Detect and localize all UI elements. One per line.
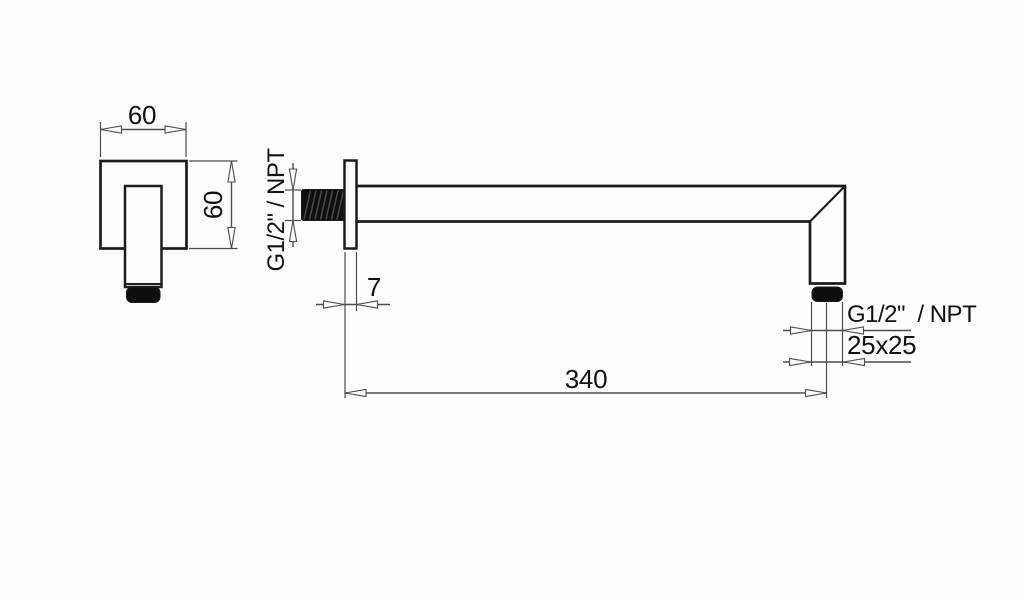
dim-arm-length: 340	[345, 303, 827, 398]
dim-wall-thread: G1/2" / NPT	[263, 148, 301, 272]
outlet-cap-front	[127, 287, 161, 303]
arrowhead-right	[790, 358, 811, 365]
arrowhead-right	[806, 389, 827, 396]
arrowhead-down	[289, 169, 296, 190]
wall-thread-nipple	[302, 190, 345, 221]
arrowhead-down	[228, 228, 235, 249]
arrowhead-up	[289, 221, 296, 242]
wall-thread-label: G1/2" / NPT	[263, 148, 290, 272]
shower-arm-technical-drawing: 60 60	[0, 0, 1024, 600]
front-view: 60 60	[101, 100, 238, 303]
plate-thickness-value: 7	[367, 272, 381, 302]
side-view: G1/2" / NPT 7 340 G1/2" / NPT	[263, 148, 977, 398]
outlet-fitting	[812, 287, 843, 302]
arrowhead-right	[324, 301, 345, 308]
dim-flange-width: 60	[101, 100, 187, 157]
arm-outline	[357, 186, 846, 284]
arrowhead-right	[165, 126, 186, 133]
outlet-thread-label: G1/2" / NPT	[847, 301, 977, 328]
flange-height-value: 60	[198, 191, 228, 219]
dim-plate-thickness: 7	[316, 252, 390, 398]
arrowhead-right	[791, 327, 812, 334]
flange-width-value: 60	[128, 100, 156, 130]
arrowhead-left	[101, 126, 122, 133]
arm-length-value: 340	[565, 364, 607, 394]
wall-plate	[345, 161, 357, 249]
arrowhead-up	[228, 161, 235, 182]
elbow-miter-line	[810, 186, 845, 222]
drawing-canvas: 60 60	[0, 0, 1024, 600]
dim-outlet-size: 25x25	[783, 330, 916, 366]
arrowhead-left	[345, 389, 366, 396]
dim-flange-height: 60	[189, 161, 238, 249]
arm-front-outline	[125, 186, 162, 287]
outlet-size-value: 25x25	[847, 330, 916, 360]
